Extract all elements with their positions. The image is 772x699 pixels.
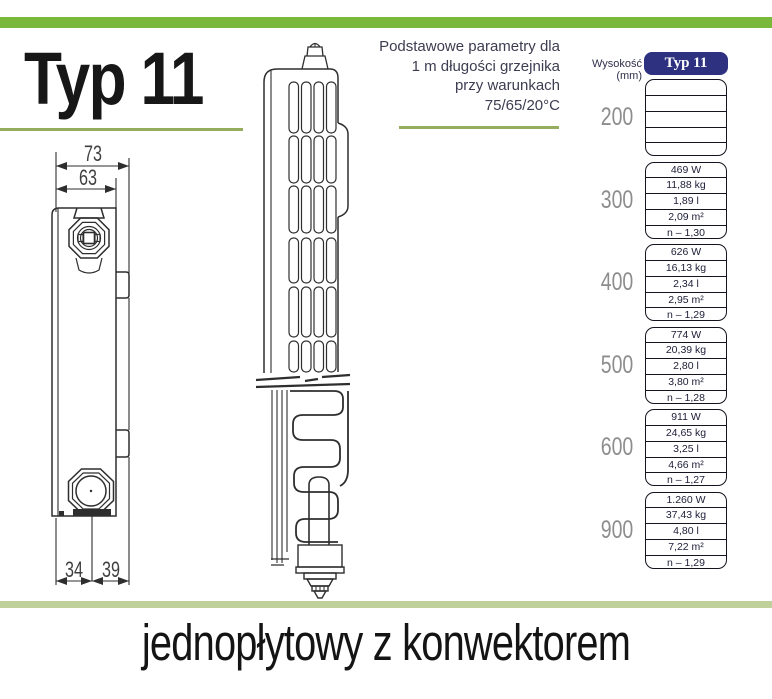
spec-cell: n – 1,27 xyxy=(646,472,726,486)
wall-bracket-lower xyxy=(116,430,129,457)
intro-underline xyxy=(399,126,559,129)
spec-cell: n – 1,28 xyxy=(646,390,726,404)
height-label-300: 300 xyxy=(599,188,635,213)
table-header-typ11: Typ 11 xyxy=(644,52,728,75)
air-vent-cap xyxy=(302,43,328,69)
radiator-side-view-drawing: 73 63 xyxy=(52,141,129,585)
intro-line: 75/65/20°C xyxy=(360,96,560,116)
spec-cell: 469 W xyxy=(646,163,726,178)
bottom-valve xyxy=(69,469,114,516)
intro-line: przy warunkach xyxy=(360,76,560,96)
dimension-39-label: 39 xyxy=(102,557,120,582)
spec-cell: 2,34 l xyxy=(646,276,726,292)
height-label-900: 900 xyxy=(599,518,635,543)
spec-cell: 2,80 l xyxy=(646,358,726,374)
dimension-34-39: 34 39 xyxy=(56,557,129,585)
spec-cell xyxy=(646,142,726,156)
spec-group-200 xyxy=(645,79,727,156)
dimension-73-label: 73 xyxy=(84,141,102,166)
spec-cell: 7,22 m² xyxy=(646,539,726,555)
dimension-73: 73 xyxy=(56,141,129,170)
drain-valve xyxy=(296,545,344,598)
spec-cell: 774 W xyxy=(646,328,726,343)
spec-cell: 4,80 l xyxy=(646,523,726,539)
spec-cell: 911 W xyxy=(646,410,726,425)
spec-group-900: 1.260 W 37,43 kg 4,80 l 7,22 m² n – 1,29 xyxy=(645,492,727,569)
spec-cell: 2,09 m² xyxy=(646,209,726,225)
spec-cell: 11,88 kg xyxy=(646,177,726,193)
spec-cell: 2,95 m² xyxy=(646,292,726,308)
footer-caption: jednopłytowy z konwektorem xyxy=(142,614,630,672)
title-underline xyxy=(0,128,243,131)
radiator-front-view-drawing xyxy=(256,43,350,598)
spec-cell: 3,25 l xyxy=(646,441,726,457)
spec-cell: 3,80 m² xyxy=(646,374,726,390)
spec-cell: 4,66 m² xyxy=(646,457,726,473)
spec-cell xyxy=(646,111,726,127)
spec-cell: 16,13 kg xyxy=(646,260,726,276)
spec-cell: n – 1,30 xyxy=(646,225,726,239)
spec-cell: n – 1,29 xyxy=(646,307,726,321)
spec-cell: 1,89 l xyxy=(646,193,726,209)
spec-cell: 37,43 kg xyxy=(646,507,726,523)
radiator-spec-sheet: Typ 11 Podstawowe parametry dla 1 m dług… xyxy=(0,0,772,699)
spec-cell: 24,65 kg xyxy=(646,425,726,441)
footer-accent-bar xyxy=(0,601,772,608)
page-title: Typ 11 xyxy=(24,36,203,121)
footer: jednopłytowy z konwektorem xyxy=(0,614,772,672)
spec-cell: 1.260 W xyxy=(646,493,726,508)
dimension-63: 63 xyxy=(56,165,116,193)
dimension-63-label: 63 xyxy=(79,165,97,190)
top-accent-bar xyxy=(0,17,772,28)
spec-group-600: 911 W 24,65 kg 3,25 l 4,66 m² n – 1,27 xyxy=(645,409,727,486)
spec-cell: 626 W xyxy=(646,245,726,260)
intro-line: Podstawowe parametry dla xyxy=(360,37,560,57)
spec-cell xyxy=(646,80,726,95)
break-lines xyxy=(256,375,350,387)
spec-cell: 20,39 kg xyxy=(646,342,726,358)
spec-group-300: 469 W 11,88 kg 1,89 l 2,09 m² n – 1,30 xyxy=(645,162,727,239)
dimension-34-label: 34 xyxy=(65,557,83,582)
parameters-intro-text: Podstawowe parametry dla 1 m długości gr… xyxy=(360,37,560,115)
intro-line: 1 m długości grzejnika xyxy=(360,57,560,77)
spec-cell xyxy=(646,127,726,143)
spec-group-500: 774 W 20,39 kg 2,80 l 3,80 m² n – 1,28 xyxy=(645,327,727,404)
height-label-500: 500 xyxy=(599,353,635,378)
wall-bracket-upper xyxy=(116,272,129,298)
grille-slots xyxy=(289,82,336,372)
spec-cell: n – 1,29 xyxy=(646,555,726,569)
height-label-200: 200 xyxy=(599,105,635,130)
height-label-600: 600 xyxy=(599,435,635,460)
spec-group-400: 626 W 16,13 kg 2,34 l 2,95 m² n – 1,29 xyxy=(645,244,727,321)
side-bracket xyxy=(338,123,348,217)
height-column-label: Wysokość (mm) xyxy=(566,58,642,82)
top-valve xyxy=(69,208,109,273)
spec-cell xyxy=(646,95,726,111)
height-label-400: 400 xyxy=(599,270,635,295)
convector-section xyxy=(271,390,348,565)
